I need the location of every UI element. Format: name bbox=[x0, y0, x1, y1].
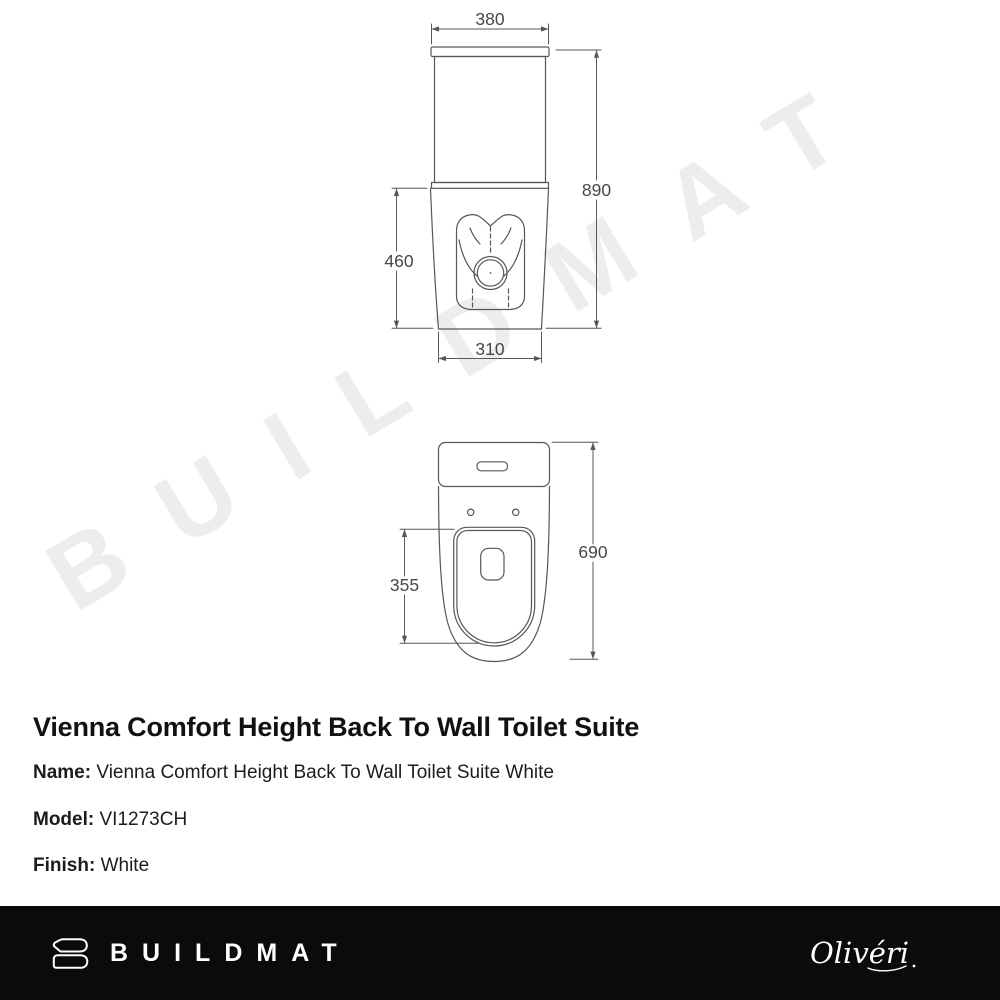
page-title: Vienna Comfort Height Back To Wall Toile… bbox=[33, 710, 963, 744]
front-view-drawing bbox=[431, 47, 550, 329]
seat-outer-ring bbox=[454, 527, 535, 646]
buildmat-b-icon bbox=[52, 938, 90, 969]
footer-bar: BUILDMAT Olivéri bbox=[0, 906, 1000, 1000]
cistern-body bbox=[435, 57, 546, 183]
spec-label-model: Model: bbox=[33, 809, 94, 830]
seat-hinge-left bbox=[468, 509, 474, 515]
spec-value-finish: White bbox=[101, 855, 150, 876]
dim-label-seat-length: 355 bbox=[390, 575, 419, 595]
flush-water-outlet bbox=[481, 548, 504, 580]
spec-label-name: Name: bbox=[33, 762, 91, 783]
cistern-top bbox=[439, 443, 550, 487]
waste-outlet-center-mark bbox=[490, 272, 492, 274]
pan-body-outline bbox=[439, 487, 550, 662]
collar-fold-left bbox=[470, 228, 480, 244]
buildmat-wordmark: BUILDMAT bbox=[110, 939, 351, 968]
product-info-section: Vienna Comfort Height Back To Wall Toile… bbox=[33, 710, 963, 744]
spec-row-name: Name: Vienna Comfort Height Back To Wall… bbox=[33, 762, 554, 784]
spec-label-finish: Finish: bbox=[33, 855, 95, 876]
seat-hinge-right bbox=[513, 509, 519, 515]
seat-edge-band bbox=[432, 183, 549, 189]
dim-label-width-top: 380 bbox=[475, 9, 504, 29]
dim-label-depth-total: 690 bbox=[578, 542, 607, 562]
spec-row-finish: Finish: White bbox=[33, 855, 149, 877]
collar-fold-right bbox=[501, 228, 511, 244]
dim-label-height-pan: 460 bbox=[384, 251, 413, 271]
plan-view-drawing bbox=[439, 443, 550, 662]
spec-value-model: VI1273CH bbox=[100, 809, 188, 830]
oliveri-script-logo: Olivéri bbox=[808, 930, 948, 980]
oliveri-logo: Olivéri bbox=[808, 930, 948, 985]
cistern-lid bbox=[431, 47, 549, 57]
buildmat-logo bbox=[52, 938, 90, 969]
oliveri-text: Olivéri bbox=[810, 936, 909, 970]
flush-button bbox=[477, 462, 508, 471]
dim-label-height-total: 890 bbox=[582, 180, 611, 200]
spec-sheet-page: BUILDMAT bbox=[0, 0, 1000, 1000]
seat-inner-ring bbox=[457, 531, 532, 643]
dim-label-width-base: 310 bbox=[475, 339, 504, 359]
spec-value-name: Vienna Comfort Height Back To Wall Toile… bbox=[96, 762, 554, 783]
pedestal-outline bbox=[431, 188, 549, 329]
spec-row-model: Model: VI1273CH bbox=[33, 809, 187, 831]
